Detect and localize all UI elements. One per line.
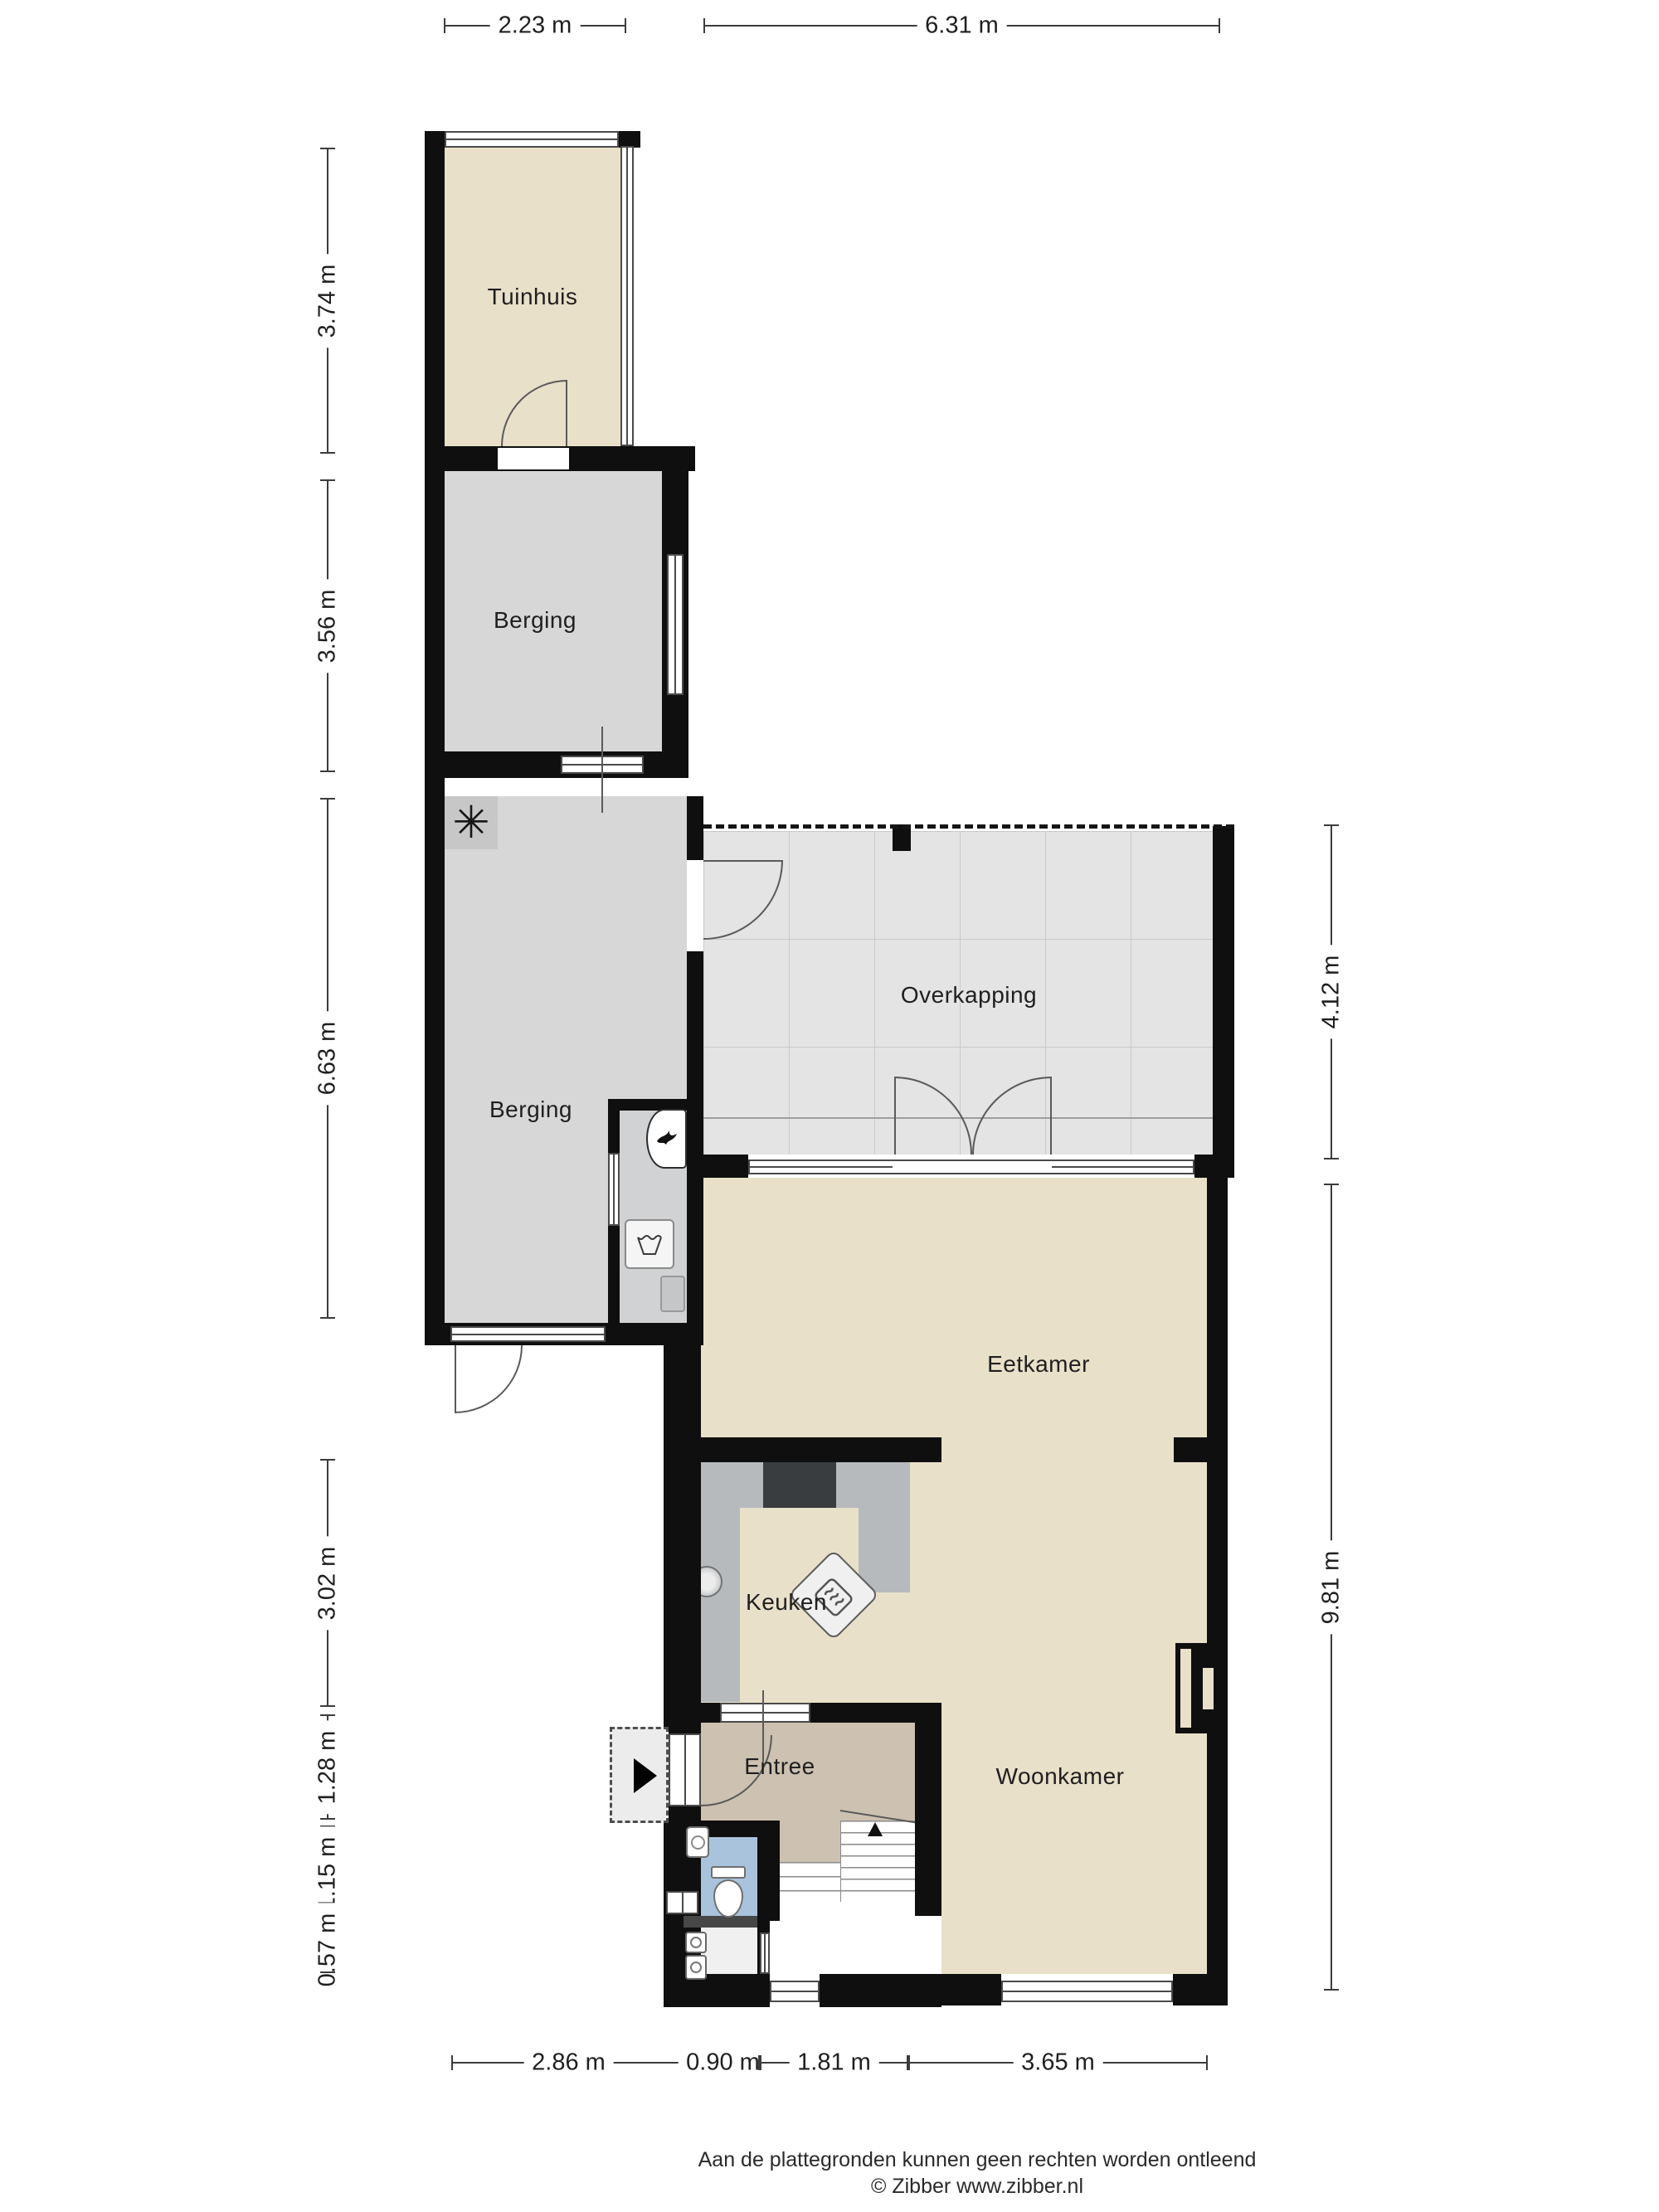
dim-right-1-label: 4.12 m (1316, 946, 1347, 1039)
toilet-sink-basin (691, 1835, 705, 1850)
wall-south-woonkamer-right (1173, 1974, 1228, 2005)
berging-overkapping-doorway (687, 860, 703, 951)
berging-boven-window (667, 554, 684, 695)
wall-berging-left (425, 778, 445, 1345)
room-label-overkapping: Overkapping (901, 982, 1037, 1009)
toilet-tank (711, 1866, 746, 1879)
stairs-lower (770, 1862, 840, 1902)
keuken-entree-door (720, 1703, 810, 1723)
wall-berging-boven-bottom (425, 751, 688, 778)
meter-icon-2 (685, 1955, 707, 1980)
dim-left-2: 3.56 m (327, 479, 328, 772)
room-label-berging: Berging (489, 1096, 572, 1123)
overkapping-dashed-edge (703, 824, 1234, 829)
berging-sliding-door-line (601, 727, 603, 813)
dim-bottom-4-label: 3.65 m (1013, 2048, 1103, 2078)
dim-right-2-label: 9.81 m (1316, 1540, 1347, 1634)
tuinhuis-top-window (445, 131, 619, 148)
chimney-slot-2 (1203, 1668, 1214, 1709)
room-label-woonkamer: Woonkamer (996, 1763, 1125, 1790)
room-label-berging-boven: Berging (494, 607, 577, 634)
wall-overkapping-east (1213, 826, 1234, 1158)
dim-bottom-3: 1.81 m (760, 2062, 908, 2064)
toilet-sink-icon (686, 1826, 709, 1858)
dim-top-1-label: 2.23 m (490, 11, 581, 41)
wall-berging-boven-left (425, 471, 445, 778)
footer-copyright: © Zibber www.zibber.nl (871, 2175, 1083, 2199)
berging-bottom-window-door (450, 1326, 606, 1342)
wall-eetkamer-east (1207, 1178, 1228, 1443)
room-label-eetkamer: Eetkamer (987, 1351, 1090, 1378)
stairs-up-arrow-icon (868, 1822, 883, 1836)
dim-left-2-label: 3.56 m (313, 579, 343, 673)
front-door-band (669, 1733, 701, 1806)
eetkamer-floor (701, 1178, 1207, 1437)
hall-south-window (770, 1981, 820, 2002)
wall-tuinhuis-left (425, 131, 445, 473)
wall-eetkamer-top-right (1194, 1155, 1234, 1178)
dim-top-2: 6.31 m (703, 25, 1220, 27)
dim-top-2-label: 6.31 m (917, 11, 1007, 41)
tuinhuis-right-window (620, 146, 634, 446)
wall-tuinhuis-corner-tr (619, 131, 640, 148)
chimney-slot-1 (1180, 1649, 1191, 1728)
wall-utility-east (687, 1099, 703, 1323)
berging-floor-narrow (445, 1099, 608, 1323)
meter-icon-1 (685, 1932, 707, 1953)
dim-left-4-label: 3.02 m (313, 1536, 343, 1630)
dim-bottom-1-label: 2.86 m (523, 2048, 614, 2078)
dim-left-5: 1.28 m (327, 1714, 328, 1820)
meter-door (760, 1932, 770, 1974)
dim-bottom-2-label: 0.90 m (678, 2048, 768, 2078)
berging-exterior-door-arc (455, 1345, 523, 1413)
hall-floor (770, 1902, 915, 1974)
dim-left-3-label: 6.63 m (313, 1012, 343, 1106)
dim-left-3: 6.63 m (327, 798, 328, 1319)
cv-boiler-icon (646, 1109, 687, 1169)
woonkamer-south-window (1001, 1981, 1173, 2002)
toilet-meter-divider (684, 1916, 757, 1928)
wall-eetkamer-top-left (687, 1155, 748, 1178)
wall-house-west (664, 1345, 701, 1974)
wall-south-mid (820, 1974, 941, 2007)
utility-sink (660, 1276, 685, 1312)
wall-berging-right-lower (687, 951, 703, 1099)
toilet-window (666, 1891, 698, 1914)
dim-left-1-label: 3.74 m (313, 254, 343, 348)
footer-disclaimer: Aan de plattegronden kunnen geen rechten… (698, 2148, 1257, 2172)
wall-hall-east (915, 1703, 941, 1916)
utility-door (608, 1153, 620, 1226)
laundry-glyph (635, 1232, 664, 1257)
wall-toilet-east (757, 1821, 780, 1921)
ventilation-fan-box: ✳ (445, 796, 498, 849)
dim-bottom-1: 2.86 m (451, 2062, 686, 2064)
entrance-arrow-icon (634, 1758, 657, 1793)
dim-bottom-4: 3.65 m (908, 2062, 1208, 2064)
room-label-keuken: Keuken (746, 1589, 827, 1616)
floorplan-canvas: ✳ Tuinhuis Berging Berging Overkapping E… (0, 0, 1659, 2212)
woonkamer-floor (941, 1462, 1207, 1974)
dim-left-7-label: 0.57 m (313, 1903, 343, 1997)
entree-floor-tongue (780, 1821, 840, 1862)
wall-eetkamer-south (701, 1437, 941, 1462)
passage-floor (941, 1437, 1174, 1462)
stove-icon (763, 1456, 836, 1508)
dim-right-2: 9.81 m (1331, 1184, 1332, 1991)
dim-right-1: 4.12 m (1331, 824, 1332, 1159)
dim-left-4: 3.02 m (327, 1459, 328, 1707)
flame-glyph (654, 1128, 679, 1150)
dim-bottom-3-label: 1.81 m (789, 2048, 879, 2078)
wall-south-west (664, 1974, 770, 2007)
dim-left-1: 3.74 m (327, 148, 328, 454)
meter-dial-2 (690, 1962, 702, 1973)
meter-dial-1 (690, 1937, 702, 1948)
washing-machine-icon (625, 1219, 674, 1269)
french-door-threshold (893, 1159, 1052, 1174)
wall-south-woonkamer-left (941, 1974, 1001, 2005)
dim-left-5-label: 1.28 m (313, 1720, 343, 1814)
room-label-entree: Entree (744, 1753, 815, 1780)
dim-bottom-2: 0.90 m (686, 2062, 760, 2064)
dim-left-7: 0.57 m (327, 1927, 328, 1973)
fan-icon: ✳ (452, 800, 489, 845)
kitchen-counter-right (859, 1508, 910, 1592)
dim-top-1: 2.23 m (444, 25, 626, 27)
wall-berging-right-upper (687, 796, 703, 860)
room-label-tuinhuis: Tuinhuis (488, 284, 578, 310)
tuinhuis-doorway (498, 448, 569, 469)
